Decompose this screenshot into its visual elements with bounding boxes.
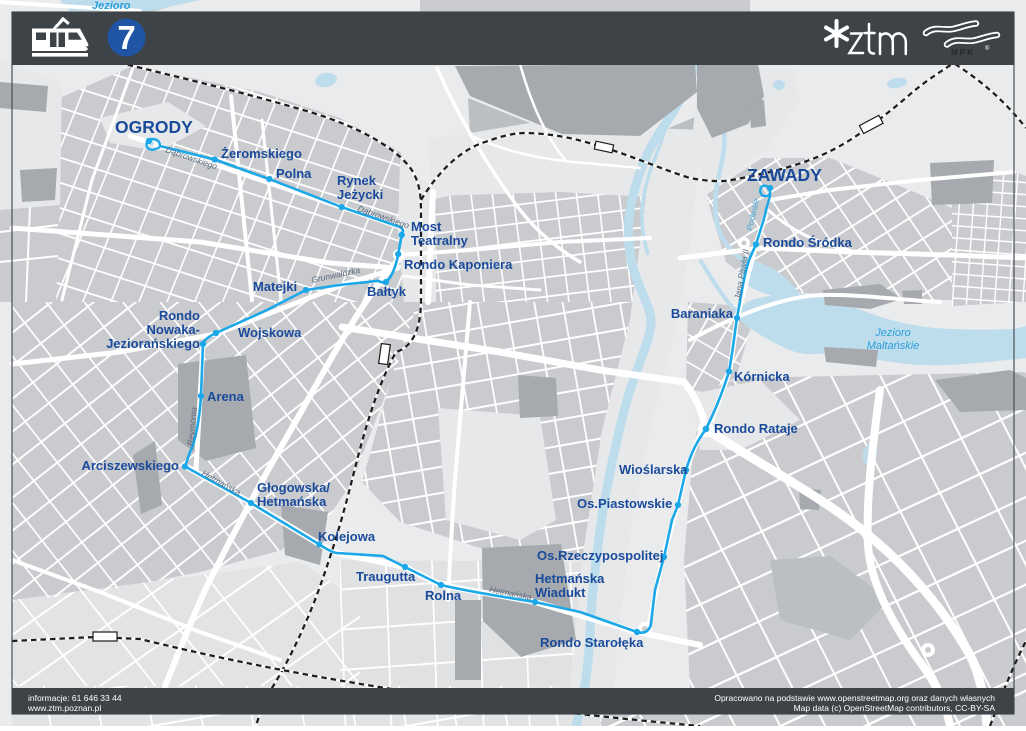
- svg-text:Os.Rzeczypospolitej: Os.Rzeczypospolitej: [537, 548, 663, 563]
- svg-text:Map data (c) OpenStreetMap con: Map data (c) OpenStreetMap contributors,…: [794, 703, 996, 713]
- svg-text:Jezioro: Jezioro: [874, 327, 910, 339]
- svg-text:ZAWADY: ZAWADY: [747, 165, 822, 185]
- svg-text:Most: Most: [411, 219, 442, 234]
- svg-text:OGRODY: OGRODY: [115, 117, 193, 137]
- svg-text:®: ®: [985, 45, 990, 52]
- svg-text:Bałtyk: Bałtyk: [367, 284, 407, 299]
- svg-text:Arciszewskiego: Arciszewskiego: [81, 458, 179, 473]
- svg-text:MPK: MPK: [951, 48, 975, 57]
- svg-text:Traugutta: Traugutta: [356, 569, 416, 584]
- svg-text:Arena: Arena: [207, 389, 245, 404]
- svg-text:Rynek: Rynek: [337, 173, 377, 188]
- svg-text:Kórnicka: Kórnicka: [734, 369, 790, 384]
- svg-text:Hetmańska: Hetmańska: [257, 494, 327, 509]
- svg-text:Rondo Rataje: Rondo Rataje: [714, 421, 798, 436]
- svg-text:Kolejowa: Kolejowa: [318, 529, 376, 544]
- svg-text:Hetmańska: Hetmańska: [535, 571, 605, 586]
- svg-text:Jeziorańskiego: Jeziorańskiego: [106, 336, 200, 351]
- svg-text:7: 7: [117, 19, 135, 56]
- svg-text:Teatralny: Teatralny: [411, 233, 469, 248]
- svg-text:Rondo Kaponiera: Rondo Kaponiera: [404, 257, 513, 272]
- svg-text:Rondo Starołęka: Rondo Starołęka: [540, 635, 644, 650]
- svg-text:Opracowano na podstawie www.op: Opracowano na podstawie www.openstreetma…: [714, 693, 995, 703]
- svg-text:Żeromskiego: Żeromskiego: [221, 146, 302, 161]
- svg-text:Baraniaka: Baraniaka: [671, 306, 734, 321]
- svg-text:Wiadukt: Wiadukt: [535, 585, 586, 600]
- svg-text:Rolna: Rolna: [425, 588, 462, 603]
- svg-text:Polna: Polna: [276, 166, 312, 181]
- svg-text:www.ztm.poznan.pl: www.ztm.poznan.pl: [27, 703, 101, 713]
- svg-text:Nowaka-: Nowaka-: [147, 322, 200, 337]
- svg-text:Jezioro: Jezioro: [92, 0, 131, 12]
- svg-text:Jeżycki: Jeżycki: [337, 187, 383, 202]
- svg-text:Głogowska/: Głogowska/: [257, 480, 330, 495]
- svg-text:informacje: 61 646 33 44: informacje: 61 646 33 44: [28, 693, 122, 703]
- svg-text:Maltańskie: Maltańskie: [867, 340, 920, 352]
- svg-text:Matejki: Matejki: [253, 279, 297, 294]
- svg-text:Wioślarska: Wioślarska: [619, 462, 688, 477]
- svg-text:Os.Piastowskie: Os.Piastowskie: [577, 496, 672, 511]
- svg-text:Wojskowa: Wojskowa: [238, 325, 302, 340]
- svg-text:Rondo Śródka: Rondo Śródka: [763, 235, 853, 250]
- svg-text:Rondo: Rondo: [159, 308, 200, 323]
